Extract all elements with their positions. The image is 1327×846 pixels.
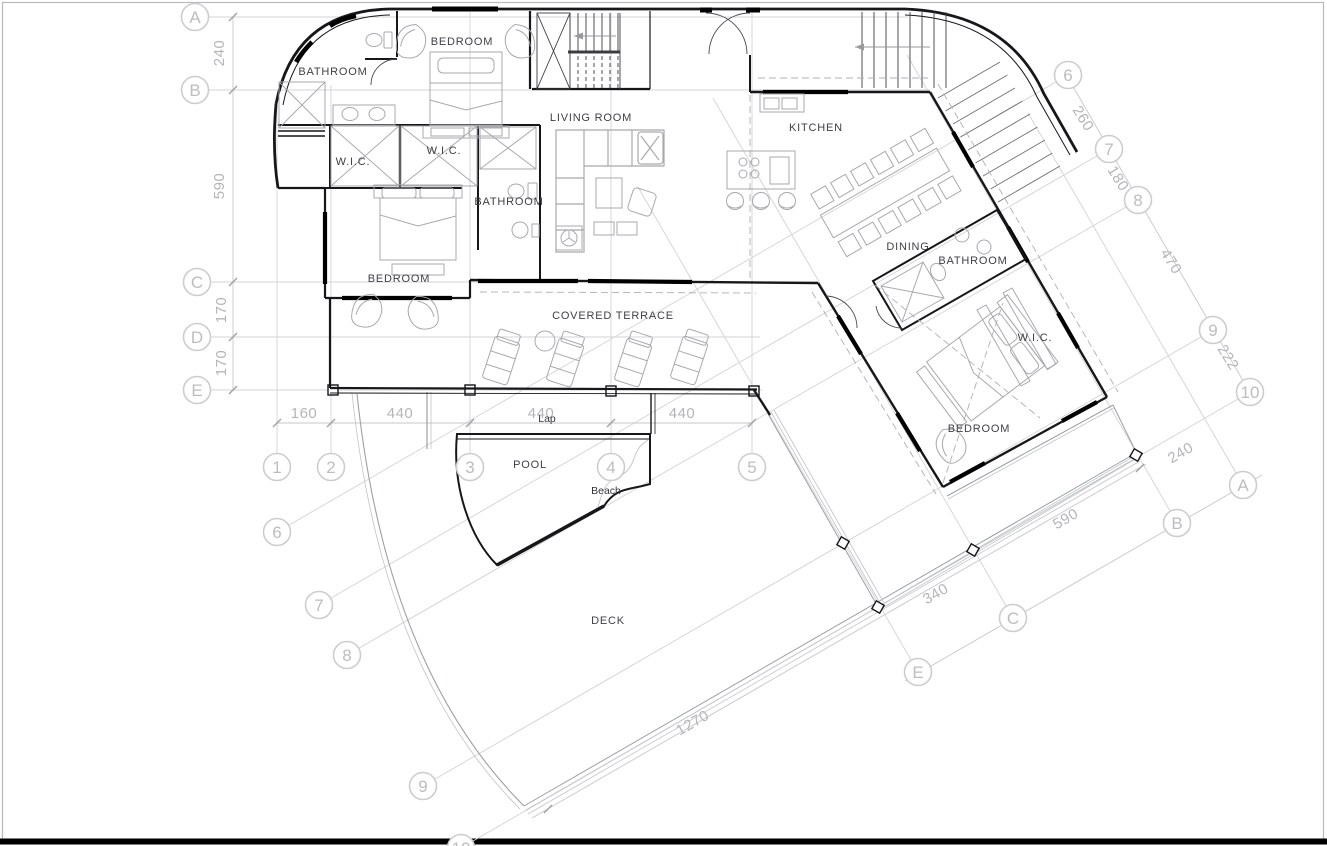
room-label-living-room: LIVING ROOM (550, 112, 632, 124)
sink-middle (512, 222, 539, 238)
dining-set (809, 128, 961, 257)
kitchen-island (727, 151, 795, 189)
stairs-top (855, 12, 946, 88)
dim-br-340: 340 (920, 580, 951, 608)
bubble-bl-7: 7 (314, 596, 323, 615)
bubble-left-C: C (191, 273, 203, 292)
dim-br-240: 240 (1165, 439, 1196, 467)
bubble-bl-9: 9 (418, 777, 427, 796)
double-sink-counter (333, 105, 395, 125)
room-label-dining: DINING (886, 241, 929, 253)
stairs-interior (537, 13, 620, 89)
grid-bubbles: A B C D E 1 2 3 4 5 6 7 8 9 10 6 7 8 9 1… (182, 4, 1264, 846)
room-label-bedroom-left: BEDROOM (368, 273, 430, 285)
door-arc-entry-left (706, 13, 747, 54)
dim-br-590: 590 (1050, 505, 1081, 533)
room-label-bathroom-middle: BATHROOM (474, 196, 543, 208)
room-label-wic-right: W.I.C. (1018, 332, 1053, 344)
dim-bottom-440c: 440 (669, 405, 696, 422)
dim-left-170b: 170 (213, 350, 230, 377)
bubble-tr-9: 9 (1208, 321, 1217, 340)
bubble-tr-7: 7 (1104, 140, 1113, 159)
bubble-left-B: B (189, 81, 200, 100)
area-label-deck: DECK (591, 615, 625, 627)
dimension-chains (229, 13, 1262, 818)
dim-tr-222: 222 (1214, 342, 1242, 374)
room-label-bedroom-right: BEDROOM (948, 423, 1010, 435)
bubble-bl-8: 8 (342, 646, 351, 665)
bubble-bottom-3: 3 (465, 458, 474, 477)
posts (328, 385, 1142, 613)
stair-top-arrow (855, 44, 864, 51)
door-arc-bathroom-top (371, 59, 397, 85)
dim-tr-180: 180 (1104, 163, 1132, 195)
bubble-br-E: E (912, 663, 923, 682)
bed-right (912, 295, 1058, 434)
room-label-wic-center: W.I.C. (427, 145, 462, 157)
kitchen-sink-counter (760, 94, 804, 112)
room-label-bathroom-right: BATHROOM (938, 255, 1007, 267)
bubble-bottom-1: 1 (272, 458, 281, 477)
bubble-bottom-4: 4 (606, 458, 615, 477)
stair-direction-arrow (574, 33, 583, 40)
dim-bottom-160: 160 (291, 405, 318, 422)
dim-left-590: 590 (211, 173, 228, 200)
room-label-bedroom-top: BEDROOM (431, 36, 493, 48)
door-arc-entry-right (709, 13, 750, 54)
bubble-tr-6: 6 (1063, 66, 1072, 85)
drawing-sheet: 240 590 170 170 160 440 440 440 260 180 … (0, 0, 1327, 846)
room-label-wic-left: W.I.C. (336, 156, 371, 168)
lounger-2 (546, 330, 587, 387)
shower-middle (480, 127, 536, 169)
stairs-exterior (938, 62, 1060, 202)
bubble-tr-10: 10 (1241, 383, 1260, 402)
chair-top-right (503, 22, 536, 60)
side-table (535, 331, 555, 351)
chair-top-left (395, 22, 428, 60)
dim-left-170a: 170 (213, 297, 230, 324)
bubble-left-E: E (191, 381, 202, 400)
toilet-top (366, 32, 392, 48)
bubble-br-B: B (1171, 514, 1182, 533)
room-label-kitchen: KITCHEN (789, 122, 843, 134)
sheet-border (3, 3, 1324, 843)
bubble-left-A: A (189, 8, 201, 27)
dim-tr-260: 260 (1069, 103, 1097, 135)
bubble-br-A: A (1237, 476, 1249, 495)
room-label-bathroom-top: BATHROOM (298, 66, 367, 78)
bubble-bl-10: 10 (452, 839, 471, 846)
bubble-tr-8: 8 (1133, 191, 1142, 210)
dim-bottom-440a: 440 (387, 405, 414, 422)
bubble-bottom-5: 5 (747, 458, 756, 477)
area-label-pool: POOL (513, 459, 547, 471)
dashed-lines (480, 78, 1118, 494)
bed-left (374, 185, 462, 275)
ottoman-2 (617, 222, 637, 235)
floor-plan-canvas: 240 590 170 170 160 440 440 440 260 180 … (0, 0, 1327, 846)
room-label-covered-terrace: COVERED TERRACE (552, 310, 674, 322)
bubble-br-C: C (1007, 609, 1019, 628)
bar-stools (727, 193, 796, 210)
bubble-left-D: D (191, 328, 203, 347)
dim-deck-1270: 1270 (673, 707, 712, 739)
area-label-beach: Beach (591, 485, 621, 497)
bubble-bottom-2: 2 (326, 458, 335, 477)
dim-left-240: 240 (211, 40, 228, 67)
bed-top (423, 52, 509, 138)
lounger-3 (614, 330, 655, 387)
area-label-lap: Lap (538, 413, 556, 425)
sink-right-2 (977, 240, 991, 254)
bubble-bl-6: 6 (272, 523, 281, 542)
coffee-table (596, 178, 622, 208)
